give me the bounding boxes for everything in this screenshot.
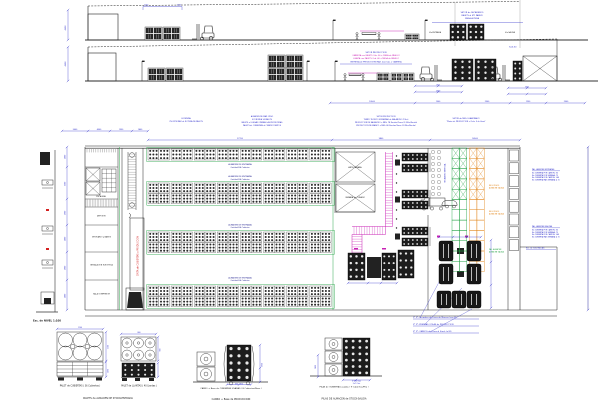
exit-rack-cell xyxy=(452,210,459,220)
light-pole-icon xyxy=(425,20,428,40)
elevation-lower xyxy=(142,55,522,81)
detail-carro-label: CARRO + Base de CUBIERTAS USADAS ( 8 Cub… xyxy=(200,387,262,390)
production-cart xyxy=(437,291,451,308)
aisle-label-3: ALMACEN DE ENTRADA xyxy=(228,224,252,227)
plan-note-d2: "Motor de PRODUCCION x Ciclo: 3 de Hora" xyxy=(446,120,485,123)
rack-note-2b: ALMACEN SALIDA xyxy=(489,213,505,216)
plan-dim-left-3: 2800 xyxy=(65,237,67,241)
exit-rack-cell xyxy=(452,230,459,240)
filled-block xyxy=(40,152,50,165)
wall-door-panel xyxy=(510,188,519,199)
plan-note-b1: ALMACEN DE MAX. PESO xyxy=(251,115,274,118)
detail-p2-label: PALET de LLANTAS ( 40 Llantas ) xyxy=(121,385,157,388)
plan-dim-top-0: 5000 xyxy=(73,129,78,131)
elev2-note-4: ENTREGA de PRODUCCION MAX. 2x4 Cub. x CA… xyxy=(350,61,402,64)
leader-2: 2ª Fª: PRENSAS / PILAS de PRODUCCION xyxy=(413,323,454,326)
forklift-icon xyxy=(192,24,214,40)
plan-dim-top-4: 27700 xyxy=(237,138,244,140)
tire-stack xyxy=(343,338,370,376)
wall-door-panel xyxy=(510,150,519,161)
filled-block xyxy=(367,257,381,278)
detail-dim-2: 1460 xyxy=(108,369,110,373)
rack-note-3b: ALMACEN SALIDA xyxy=(489,251,505,254)
aisle-label-4: ALMACEN DE ENTRADA xyxy=(228,277,252,280)
cad-drawing-canvas: SETOR de SECADEROS PALETS al MT. PARED M… xyxy=(0,0,600,403)
exit-rack-cell xyxy=(459,210,466,220)
exit-rack-cell xyxy=(477,200,484,210)
detail-dim-4: 900 xyxy=(160,348,162,351)
conveyor-note: CINTA de CUBIERTAS a PRODUCCION xyxy=(137,235,140,276)
exit-rack-cell xyxy=(470,200,477,210)
aisle-label-2: ALMACEN DE ENTRADA xyxy=(228,175,252,178)
plan-dim-top-1: 4500 xyxy=(97,129,102,131)
detail-dim-1: 1100 xyxy=(108,345,110,349)
person-icon xyxy=(362,74,365,81)
wall-door-panel xyxy=(510,201,519,212)
car-glyph xyxy=(442,201,457,206)
filled-block xyxy=(122,378,127,381)
exit-rack-cell xyxy=(470,220,477,230)
right-block2-title: PAL. ABIERTA (SALIDA) xyxy=(532,225,553,228)
aisle-sub-2: Cantidad 504 Cubiertas xyxy=(231,178,250,181)
right-note: Esc. de Tons PALCAS xyxy=(526,247,545,250)
chamber-2-label: CAMARA de CURADO xyxy=(345,196,365,199)
person-icon xyxy=(378,33,381,40)
exit-rack-cell xyxy=(459,220,466,230)
room-label-1: DEPOSITO xyxy=(97,216,107,218)
elev2-height-dim: 4500 xyxy=(65,61,67,67)
light-pole-icon xyxy=(335,61,338,81)
press-base xyxy=(127,292,143,308)
production-cart xyxy=(439,264,453,284)
tire-stack xyxy=(402,190,428,198)
plan-dim-top-2: 1350 xyxy=(119,129,124,131)
station-connector xyxy=(395,234,400,240)
plan-dim-top-6: 14500 xyxy=(472,138,479,140)
plan-note-c3: PRODUCCION DE BALANCEO x MES: 78 Ruedas/… xyxy=(355,121,418,124)
detail-group12-label: PALETS de ALMACEN DE STOCK-ENTRADA xyxy=(83,397,133,400)
filled-block xyxy=(58,378,64,381)
light-pole-icon xyxy=(142,61,145,81)
filled-block xyxy=(135,378,140,381)
red-mark xyxy=(46,209,49,211)
tire-stack xyxy=(513,61,522,81)
plan-note-c2: TEMPO TEORICO ESTANDAR de BALANCEO (15hs… xyxy=(364,118,409,121)
detail-dim-6: 650 - 650 xyxy=(235,383,243,385)
machine-stations xyxy=(395,153,430,246)
light-pole-icon xyxy=(307,61,310,81)
right-wall-panels xyxy=(510,150,519,251)
exit-rack-cell xyxy=(477,210,484,220)
elev1-note-3: MESA ALTURA xyxy=(465,17,480,20)
plan-note-b2: ECONOMIA 14 PALETS xyxy=(252,118,273,121)
room-label-0: ESCALERA xyxy=(96,195,106,198)
right-block1-title: PAL. ABIERTA (ENTRADA) xyxy=(532,168,555,171)
filled-block xyxy=(77,378,83,381)
plan-note-a1: LEYENDA xyxy=(181,117,191,120)
rack-note-1b: ALMACEN SALIDA xyxy=(489,187,505,190)
elev1-label-out: Via SALIDA xyxy=(505,31,516,34)
elev1-label-in: Via ENTRADA xyxy=(429,31,442,34)
elev1-note-1: SETOR de SECADEROS xyxy=(461,11,485,14)
filled-block xyxy=(96,378,102,381)
filled-block xyxy=(457,271,464,277)
plan-dim-left-2: 2500 xyxy=(65,211,67,215)
plan-note-a2: 750 MTS MAX de ROTURA DE PALETS xyxy=(169,120,203,123)
detail-dim-5: 1750 xyxy=(262,363,264,367)
elev2-note-1: SETOR PRODUCCION xyxy=(366,52,387,54)
plan-note-c1: SETOR PRODUCCION xyxy=(377,116,397,118)
room-label-3: INSTALACION ELECTRICA xyxy=(90,264,113,267)
wall-door-panel xyxy=(510,240,519,251)
leader-1: 1ª Fª: Secadero de Linea de Marcas (con … xyxy=(413,316,457,319)
tire-stack xyxy=(402,201,428,209)
scale-note: Esc. de NIVEL 1:100 xyxy=(33,319,61,323)
station-connector xyxy=(395,197,400,203)
elev2-dim-3: 10500 xyxy=(369,101,376,103)
tire-stack xyxy=(402,164,428,172)
plan-dim-top-3: 1400 xyxy=(138,129,143,131)
person-icon xyxy=(344,74,347,81)
left-section-strip xyxy=(41,180,54,304)
plan-dim-top-5: 9800 xyxy=(379,138,384,140)
elev1-note-2: PALETS al MT. PARED xyxy=(462,14,483,17)
magenta-mark xyxy=(382,248,386,250)
plan-dim-left-4: 2900 xyxy=(65,266,67,270)
plan-note-b4: PALETS de CUBIERTAS al CUATROCIENTOS xyxy=(243,124,282,127)
detail-dim-8: 2+7 Cub. xyxy=(353,382,361,385)
elev1-height-dim: 4500 xyxy=(65,25,67,31)
exit-rack-cell xyxy=(452,220,459,230)
production-cart xyxy=(439,241,453,261)
production-cart xyxy=(467,241,481,261)
plan-dim-left-1: 3300 xyxy=(65,182,67,186)
aisle-label-1: ALMACEN DE ENTRADA xyxy=(228,163,252,166)
wall-door-panel xyxy=(510,227,519,238)
plan-note-b3: PALETS al LLEGAR OPERAN LAS PRODUCIDAS xyxy=(242,121,284,124)
detail-p1-label: PALET de CUBIERTAS ( 36 Cubiertas ) xyxy=(60,385,101,388)
elev2-h-note: h=6.50 xyxy=(509,47,517,49)
elev2-note-2: CARRETA con PALETS Cub. 36 + MESA de PAS… xyxy=(352,54,400,57)
exit-rack-cell xyxy=(470,230,477,240)
production-cart xyxy=(452,291,466,308)
detail-pilas-label: PILAS de CUBIERTAS usadas ( 9 Cubiertas/… xyxy=(319,386,368,389)
magenta-mark xyxy=(354,248,358,250)
exit-rack-cell xyxy=(477,220,484,230)
production-cart xyxy=(467,291,481,308)
plan-note-d1: SETOR de MES. ELABORADO xyxy=(453,117,480,120)
production-cart xyxy=(467,264,481,284)
right-block1-l4: No CUBIERTA MAX SEMANA: 4 Tn xyxy=(532,179,560,182)
aisle-sub-4: Cantidad 504 Cubiertas xyxy=(231,279,250,282)
filled-block xyxy=(149,378,154,381)
warehouse-cad-drawing: SETOR de SECADEROS PALETS al MT. PARED M… xyxy=(0,0,600,403)
room-label-2: VESTUARIO y BAÑOS xyxy=(92,236,112,239)
detail-dim-9: 1800 xyxy=(315,365,317,369)
elev1-stack-dim-l: 1100 xyxy=(144,5,149,7)
aisle-sub-3: Cantidad 504 Cubiertas xyxy=(231,226,250,229)
plan-dim-left-0: 2000 xyxy=(65,155,67,159)
detail-dim-0: 1100 xyxy=(78,327,82,329)
tire-stack xyxy=(402,153,428,161)
light-pole-icon xyxy=(333,20,336,40)
detail-pilas-main: PILAS DE ALMACEN de STOCK-SALIDA xyxy=(321,398,366,401)
wall-door-panel xyxy=(510,176,519,187)
right-block2-l4: No CUBIERTA MAX SEMANA: 4 Tn xyxy=(532,236,560,239)
red-mark xyxy=(46,248,49,250)
exit-rack-cell xyxy=(470,210,477,220)
exit-rack-cell xyxy=(459,261,466,271)
exit-rack-cell xyxy=(477,230,484,240)
detail-carro-main: CARRO + Base de PRODUCCION xyxy=(212,398,251,401)
wall-door-panel xyxy=(510,163,519,174)
plan-dim-left-5: 2800 xyxy=(65,294,67,298)
detail-dim-3: 800 xyxy=(137,332,140,334)
wall-door-panel xyxy=(510,214,519,225)
leader-3: 3ª Fª: CARROS de Linea al Stock (al B) xyxy=(413,330,452,333)
plan-note-c4: PRODUCCION DE BIANCO x MES: 80 Ruedas/Tu… xyxy=(356,124,416,127)
secadero-note: SECADERO VERTICAL xyxy=(444,163,447,182)
elev2-note-3: LLANTA con PALETS Cub. 40 + MESA de PASI… xyxy=(353,57,399,60)
aisle-sub-1: Cantidad 504 Cubiertas xyxy=(231,166,250,169)
tire-stack xyxy=(402,227,428,235)
tire-stack xyxy=(402,238,428,246)
forklift-icon xyxy=(420,65,442,81)
chamber-1-label: ANTECAMARA xyxy=(348,166,362,169)
person-icon xyxy=(356,33,359,40)
station-connector xyxy=(395,160,400,166)
room-label-4: SALA COMPRESOR xyxy=(93,293,110,296)
exit-rack-cell xyxy=(452,200,459,210)
exit-rack-cell xyxy=(459,200,466,210)
